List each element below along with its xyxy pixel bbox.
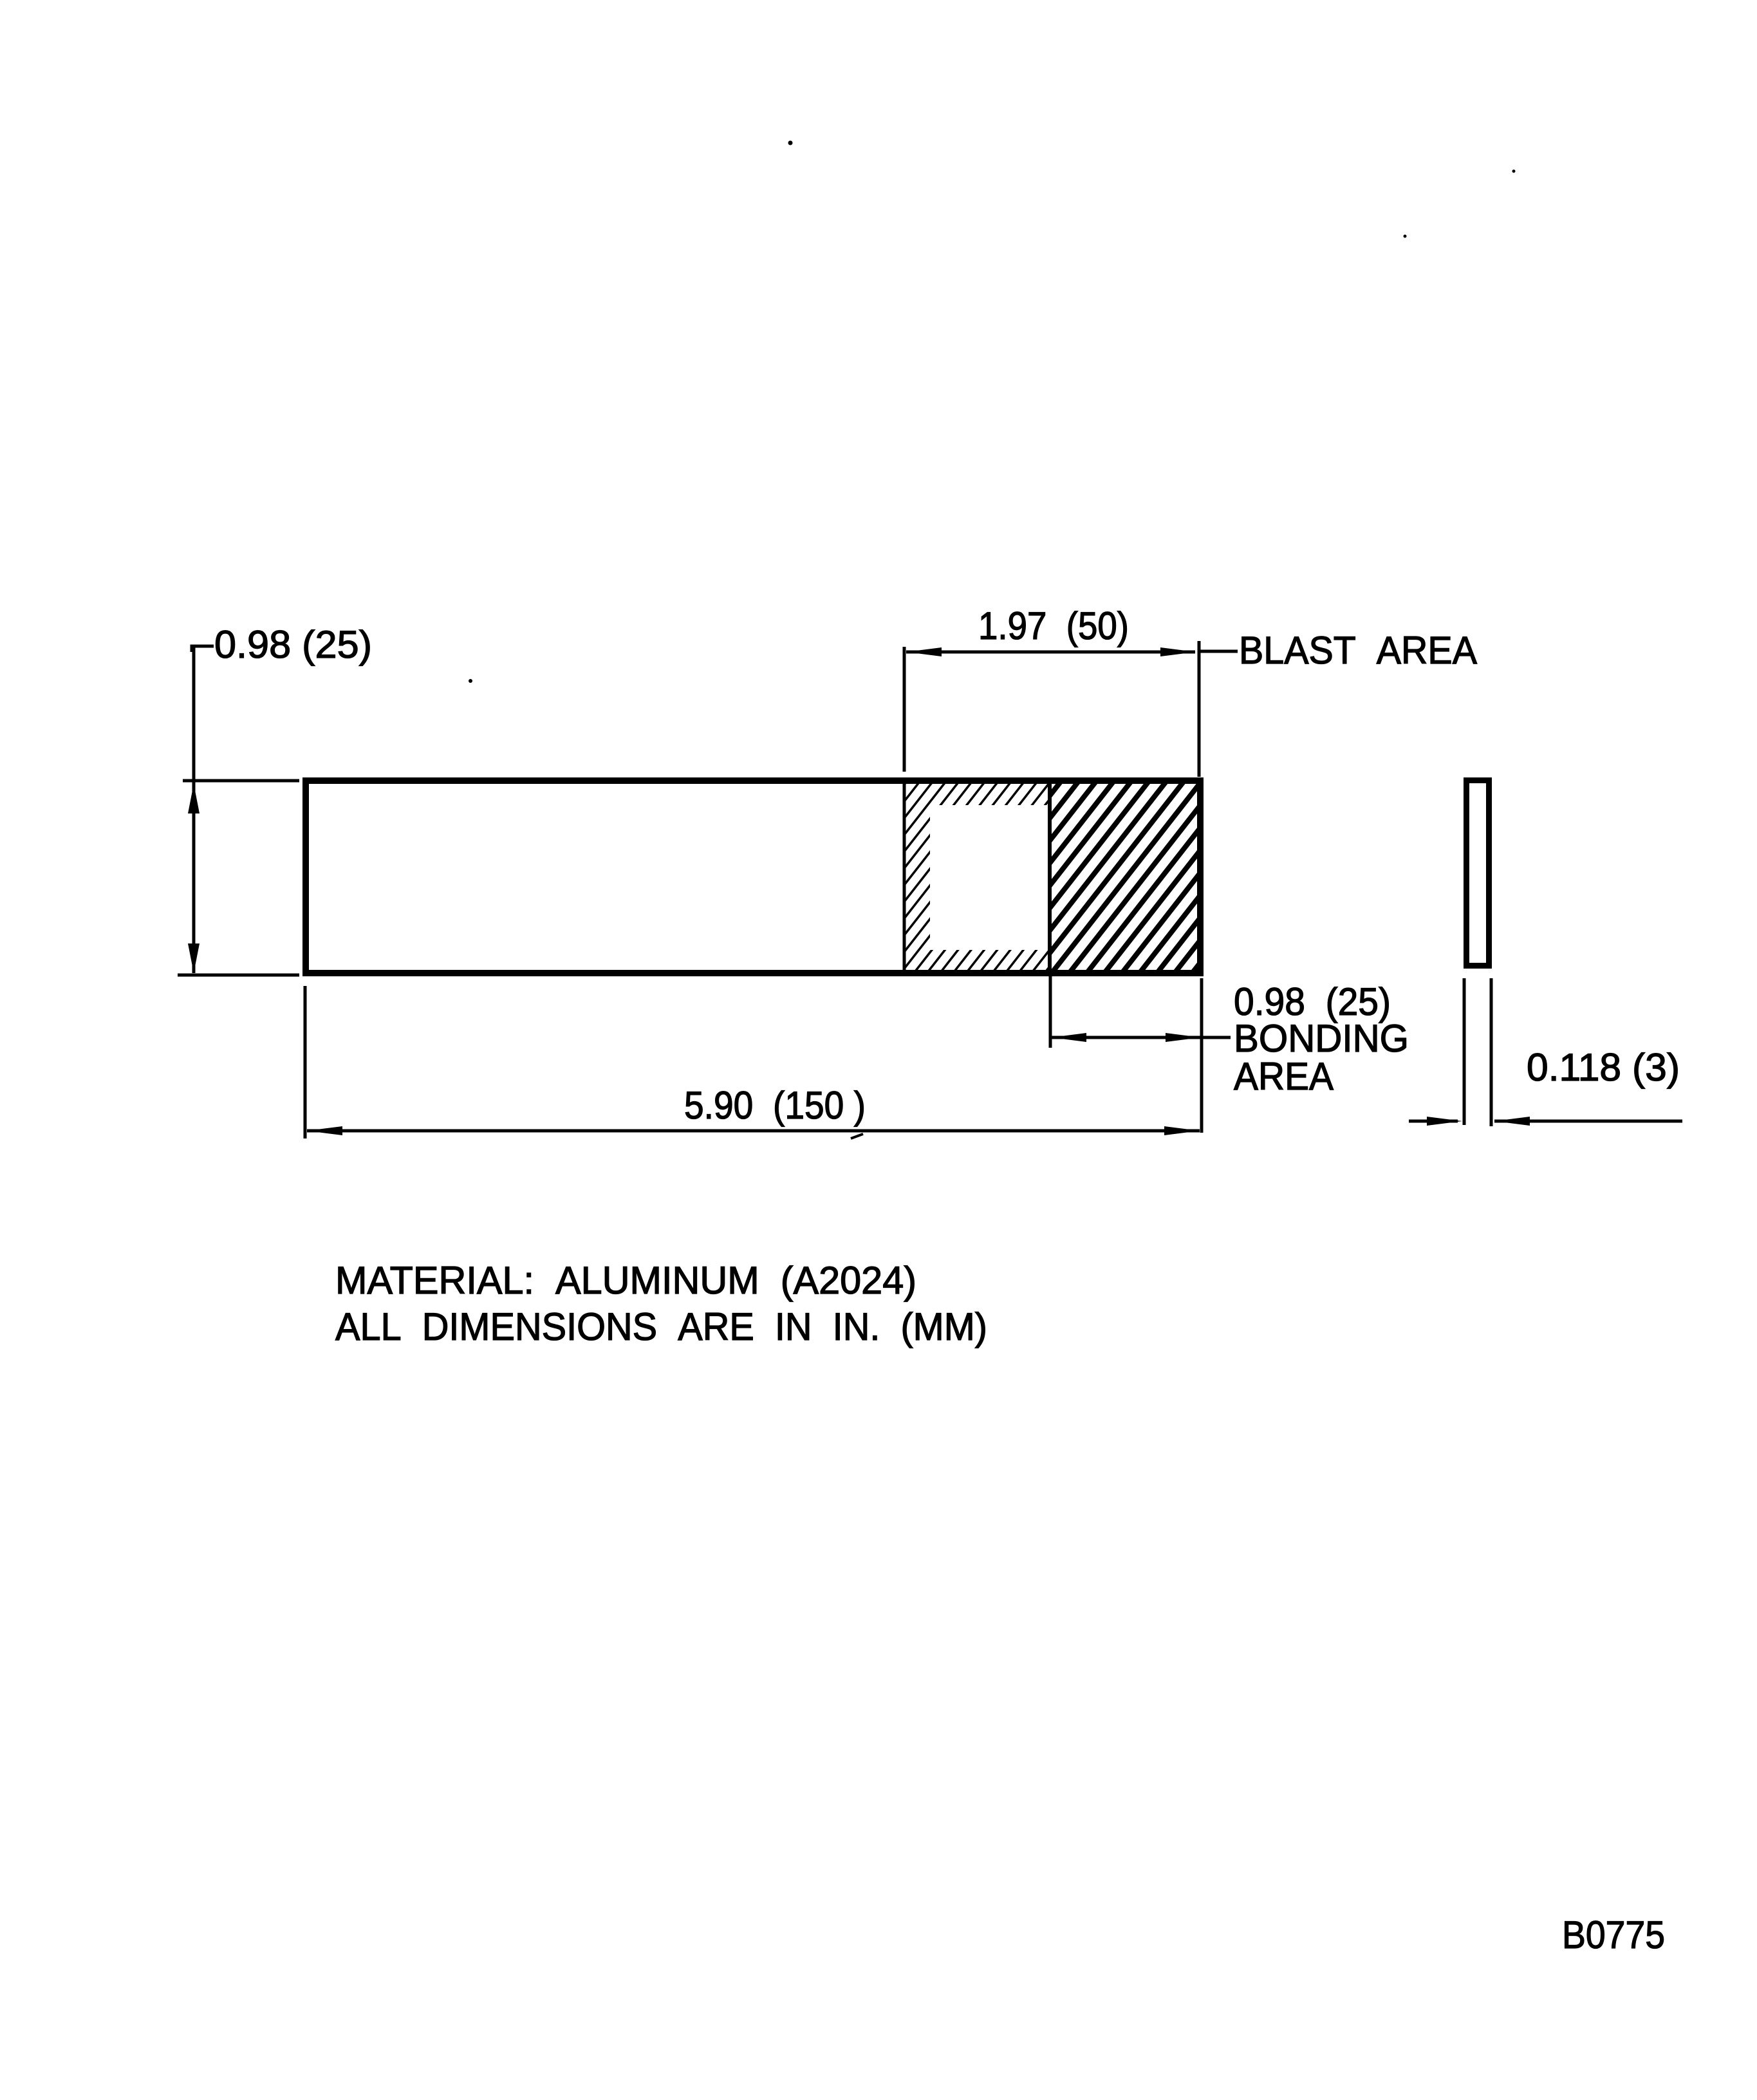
- svg-text:AREA: AREA: [1234, 1055, 1334, 1098]
- svg-text:0.118 (3): 0.118 (3): [1527, 1046, 1680, 1089]
- svg-text:0.98 (25): 0.98 (25): [214, 623, 372, 666]
- svg-text:ALL DIMENSIONS ARE IN IN.: ALL DIMENSIONS ARE IN IN. (MM): [335, 1305, 987, 1348]
- svg-text:1.97 (50): 1.97 (50): [978, 604, 1129, 647]
- svg-text:5.90 (150 ): 5.90 (150 ): [684, 1084, 866, 1127]
- svg-text:B0775: B0775: [1562, 1913, 1665, 1956]
- svg-text:BONDING: BONDING: [1234, 1017, 1409, 1060]
- svg-text:MATERIAL: ALUMINUM (A2024): MATERIAL: ALUMINUM (A2024): [335, 1259, 916, 1302]
- svg-text:BLAST AREA: BLAST AREA: [1239, 629, 1477, 672]
